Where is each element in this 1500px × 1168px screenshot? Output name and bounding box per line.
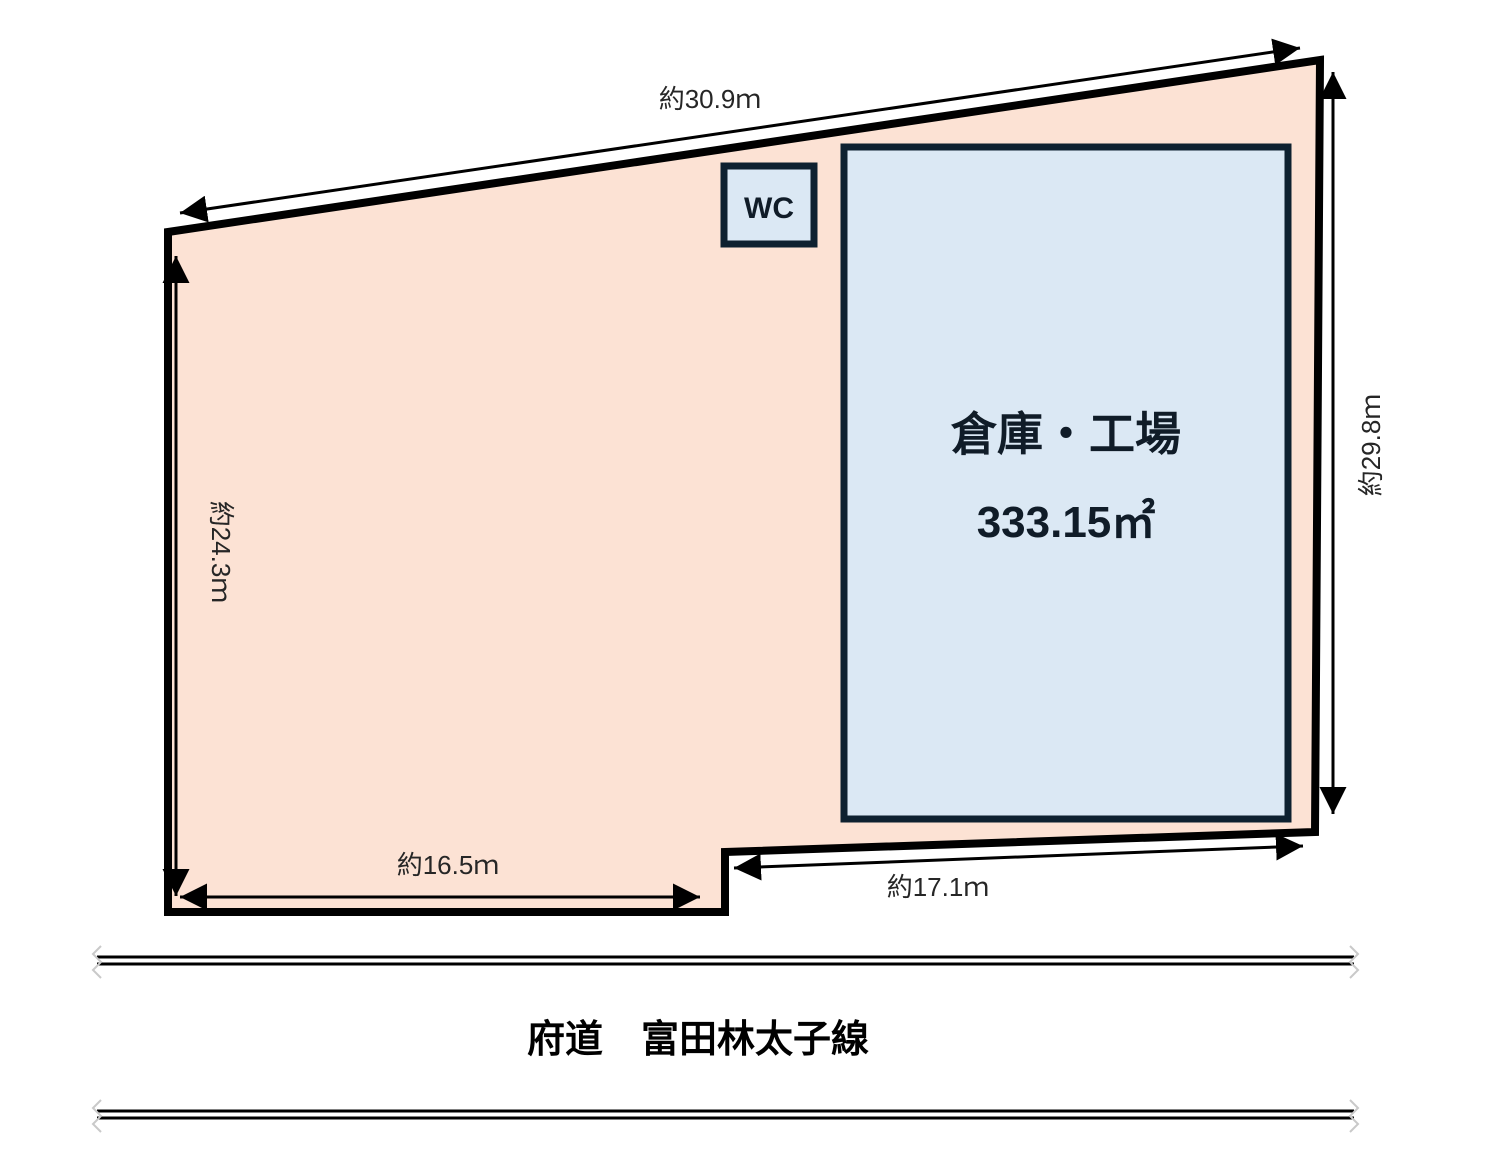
wc-label: WC bbox=[744, 192, 794, 225]
dimension-label-left: 約24.3ｍ bbox=[206, 501, 236, 604]
road-name-label: 府道 富田林太子線 bbox=[527, 1018, 869, 1061]
dimension-label-right: 約29.8ｍ bbox=[1356, 394, 1386, 497]
road-edge-lower bbox=[97, 1111, 1354, 1118]
dimension-label-top: 約30.9ｍ bbox=[659, 84, 762, 114]
road-edge-upper bbox=[97, 957, 1354, 964]
dimension-label-bottom-right: 約17.1ｍ bbox=[887, 872, 990, 902]
diagram-svg: 倉庫・工場 333.15㎡ WC 約30.9ｍ 約29.8ｍ 約24.3ｍ 約1… bbox=[0, 0, 1500, 1168]
building-name-label: 倉庫・工場 bbox=[950, 408, 1181, 460]
dimension-label-bottom-left: 約16.5ｍ bbox=[397, 850, 500, 880]
land-plot-diagram: 倉庫・工場 333.15㎡ WC 約30.9ｍ 約29.8ｍ 約24.3ｍ 約1… bbox=[0, 0, 1500, 1168]
building-area-label: 333.15㎡ bbox=[977, 497, 1156, 547]
warehouse-building bbox=[844, 147, 1288, 819]
